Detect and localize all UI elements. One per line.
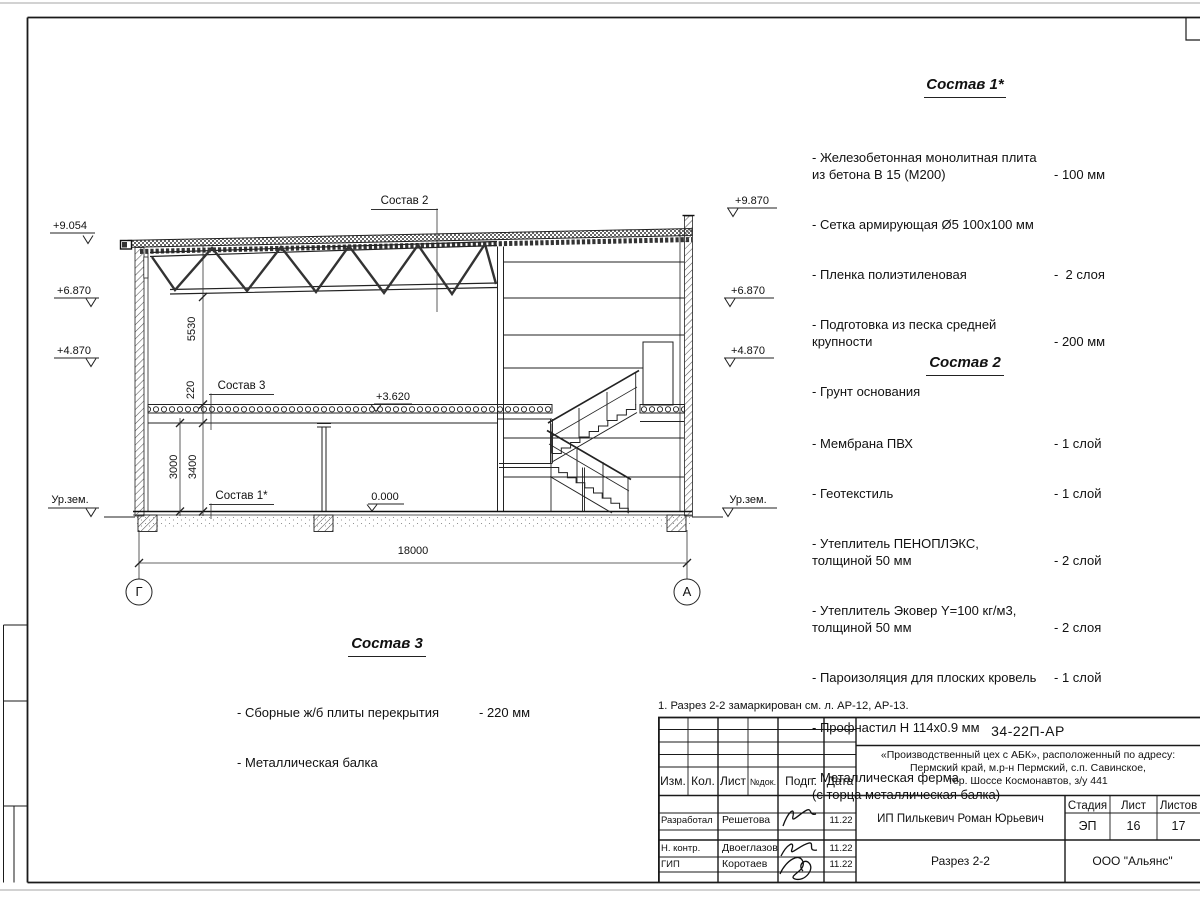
roof-gutter xyxy=(122,242,127,248)
row-date: 11.22 xyxy=(828,815,854,827)
ref-sostav2: Состав 2 xyxy=(371,194,438,210)
dim-5530: 5530 xyxy=(186,309,200,349)
row-name: Двоеглазов xyxy=(722,842,778,855)
row-role: Н. контр. xyxy=(661,843,700,855)
dim-3400: 3400 xyxy=(187,447,201,487)
elev-right-6870: +6.870 xyxy=(724,285,772,299)
staircase xyxy=(499,371,639,514)
list-item: - Железобетонная монолитная плита из бет… xyxy=(812,149,1144,183)
doc-number: 34-22П-АР xyxy=(856,723,1200,741)
elev-left-6870: +6.870 xyxy=(50,285,98,299)
row-date: 11.22 xyxy=(828,843,854,855)
list-item: - Подготовка из песка средней крупности-… xyxy=(812,316,1144,350)
list-item: - Пленка полиэтиленовая- 2 слоя xyxy=(812,266,1144,283)
floor-bedding xyxy=(135,515,690,529)
axis-letter-g: Г xyxy=(129,584,149,600)
steel-column xyxy=(317,424,331,512)
list-item: - Сетка армирующая Ø5 100х100 мм xyxy=(812,216,1144,233)
client-name: ИП Пилькевич Роман Юрьевич xyxy=(856,812,1065,826)
elev-right-4870: +4.870 xyxy=(724,345,772,359)
row-role: Разработал xyxy=(661,815,713,827)
row-name: Коротаев xyxy=(722,858,767,871)
row-date: 11.22 xyxy=(828,859,854,871)
list-item: - Сборные ж/б плиты перекрытия- 220 мм xyxy=(237,704,569,721)
leader-lines xyxy=(211,209,437,520)
interior-wall xyxy=(498,247,504,512)
sheets-label: Листов xyxy=(1157,799,1200,813)
ref-sostav3: Состав 3 xyxy=(209,379,274,395)
left-wall xyxy=(135,248,144,517)
col-podp: Подп. xyxy=(778,774,824,789)
col-izm: Изм. xyxy=(658,774,688,789)
drawing-sheet: Состав 1* Состав 2 Состав 3 - Железобето… xyxy=(0,0,1200,900)
sheet-note: 1. Разрез 2-2 замаркирован см. л. АР-12,… xyxy=(658,699,909,713)
sheet-label: Лист xyxy=(1110,799,1157,813)
stage-label: Стадия xyxy=(1065,799,1110,813)
sheet-number: 16 xyxy=(1110,819,1157,835)
sostav1-list: - Железобетонная монолитная плита из бет… xyxy=(812,129,1144,433)
list-item: - Грунт основания xyxy=(812,383,1144,400)
signature-korotaev xyxy=(780,858,811,880)
mezzanine-slab xyxy=(148,405,552,414)
col-list: Лист xyxy=(718,774,748,789)
col-ndok: №док. xyxy=(748,777,778,788)
sostav3-list: - Сборные ж/б плиты перекрытия- 220 мм -… xyxy=(237,684,569,804)
sostav1-title: Состав 1* xyxy=(924,76,1006,98)
elev-left-4870: +4.870 xyxy=(50,345,98,359)
mezzanine-slab-right xyxy=(640,405,685,414)
list-item: - Утеплитель ПЕНОПЛЭКС, толщиной 50 мм- … xyxy=(812,535,1144,569)
list-item: - Геотекстиль- 1 слой xyxy=(812,485,1144,502)
row-name: Решетова xyxy=(722,814,770,827)
dim-18000: 18000 xyxy=(388,545,438,559)
level-0000: 0.000 xyxy=(366,491,404,505)
stage-value: ЭП xyxy=(1065,819,1110,835)
dim-220: 220 xyxy=(185,375,199,405)
left-wall-bracket xyxy=(144,257,148,278)
elev-left-ground: Ур.зем. xyxy=(44,494,96,508)
row-role: ГИП xyxy=(661,859,680,871)
list-item: - Металлическая балка xyxy=(237,754,569,771)
list-item: - Пароизоляция для плоских кровель- 1 сл… xyxy=(812,669,1144,686)
right-wall xyxy=(685,216,693,516)
foundation-pad-left xyxy=(138,515,157,532)
project-description: «Производственный цех с АБК», расположен… xyxy=(856,749,1200,788)
col-kol: Кол. xyxy=(688,774,718,789)
door-opening xyxy=(643,342,673,405)
elev-left-9054: +9.054 xyxy=(46,220,94,234)
elev-right-ground: Ур.зем. xyxy=(722,494,774,508)
elev-right-9870: +9.870 xyxy=(728,195,776,209)
signature-dvoeglazov xyxy=(781,843,817,856)
sostav3-title: Состав 3 xyxy=(348,635,426,657)
sheet-title: Разрез 2-2 xyxy=(856,854,1065,869)
level-3620: +3.620 xyxy=(372,391,414,405)
foundation-pad-right xyxy=(667,515,686,532)
dim-3000: 3000 xyxy=(168,447,182,487)
ref-sostav1: Состав 1* xyxy=(209,489,274,505)
list-item: - Утеплитель Эковер Y=100 кг/м3, толщино… xyxy=(812,602,1144,636)
axis-letter-a: А xyxy=(677,584,697,600)
sheets-total: 17 xyxy=(1157,819,1200,835)
foundation-pad-mid xyxy=(314,515,333,532)
company-name: ООО "Альянс" xyxy=(1065,854,1200,869)
col-data: Дата xyxy=(824,774,856,789)
list-item: - Мембрана ПВХ- 1 слой xyxy=(812,435,1144,452)
